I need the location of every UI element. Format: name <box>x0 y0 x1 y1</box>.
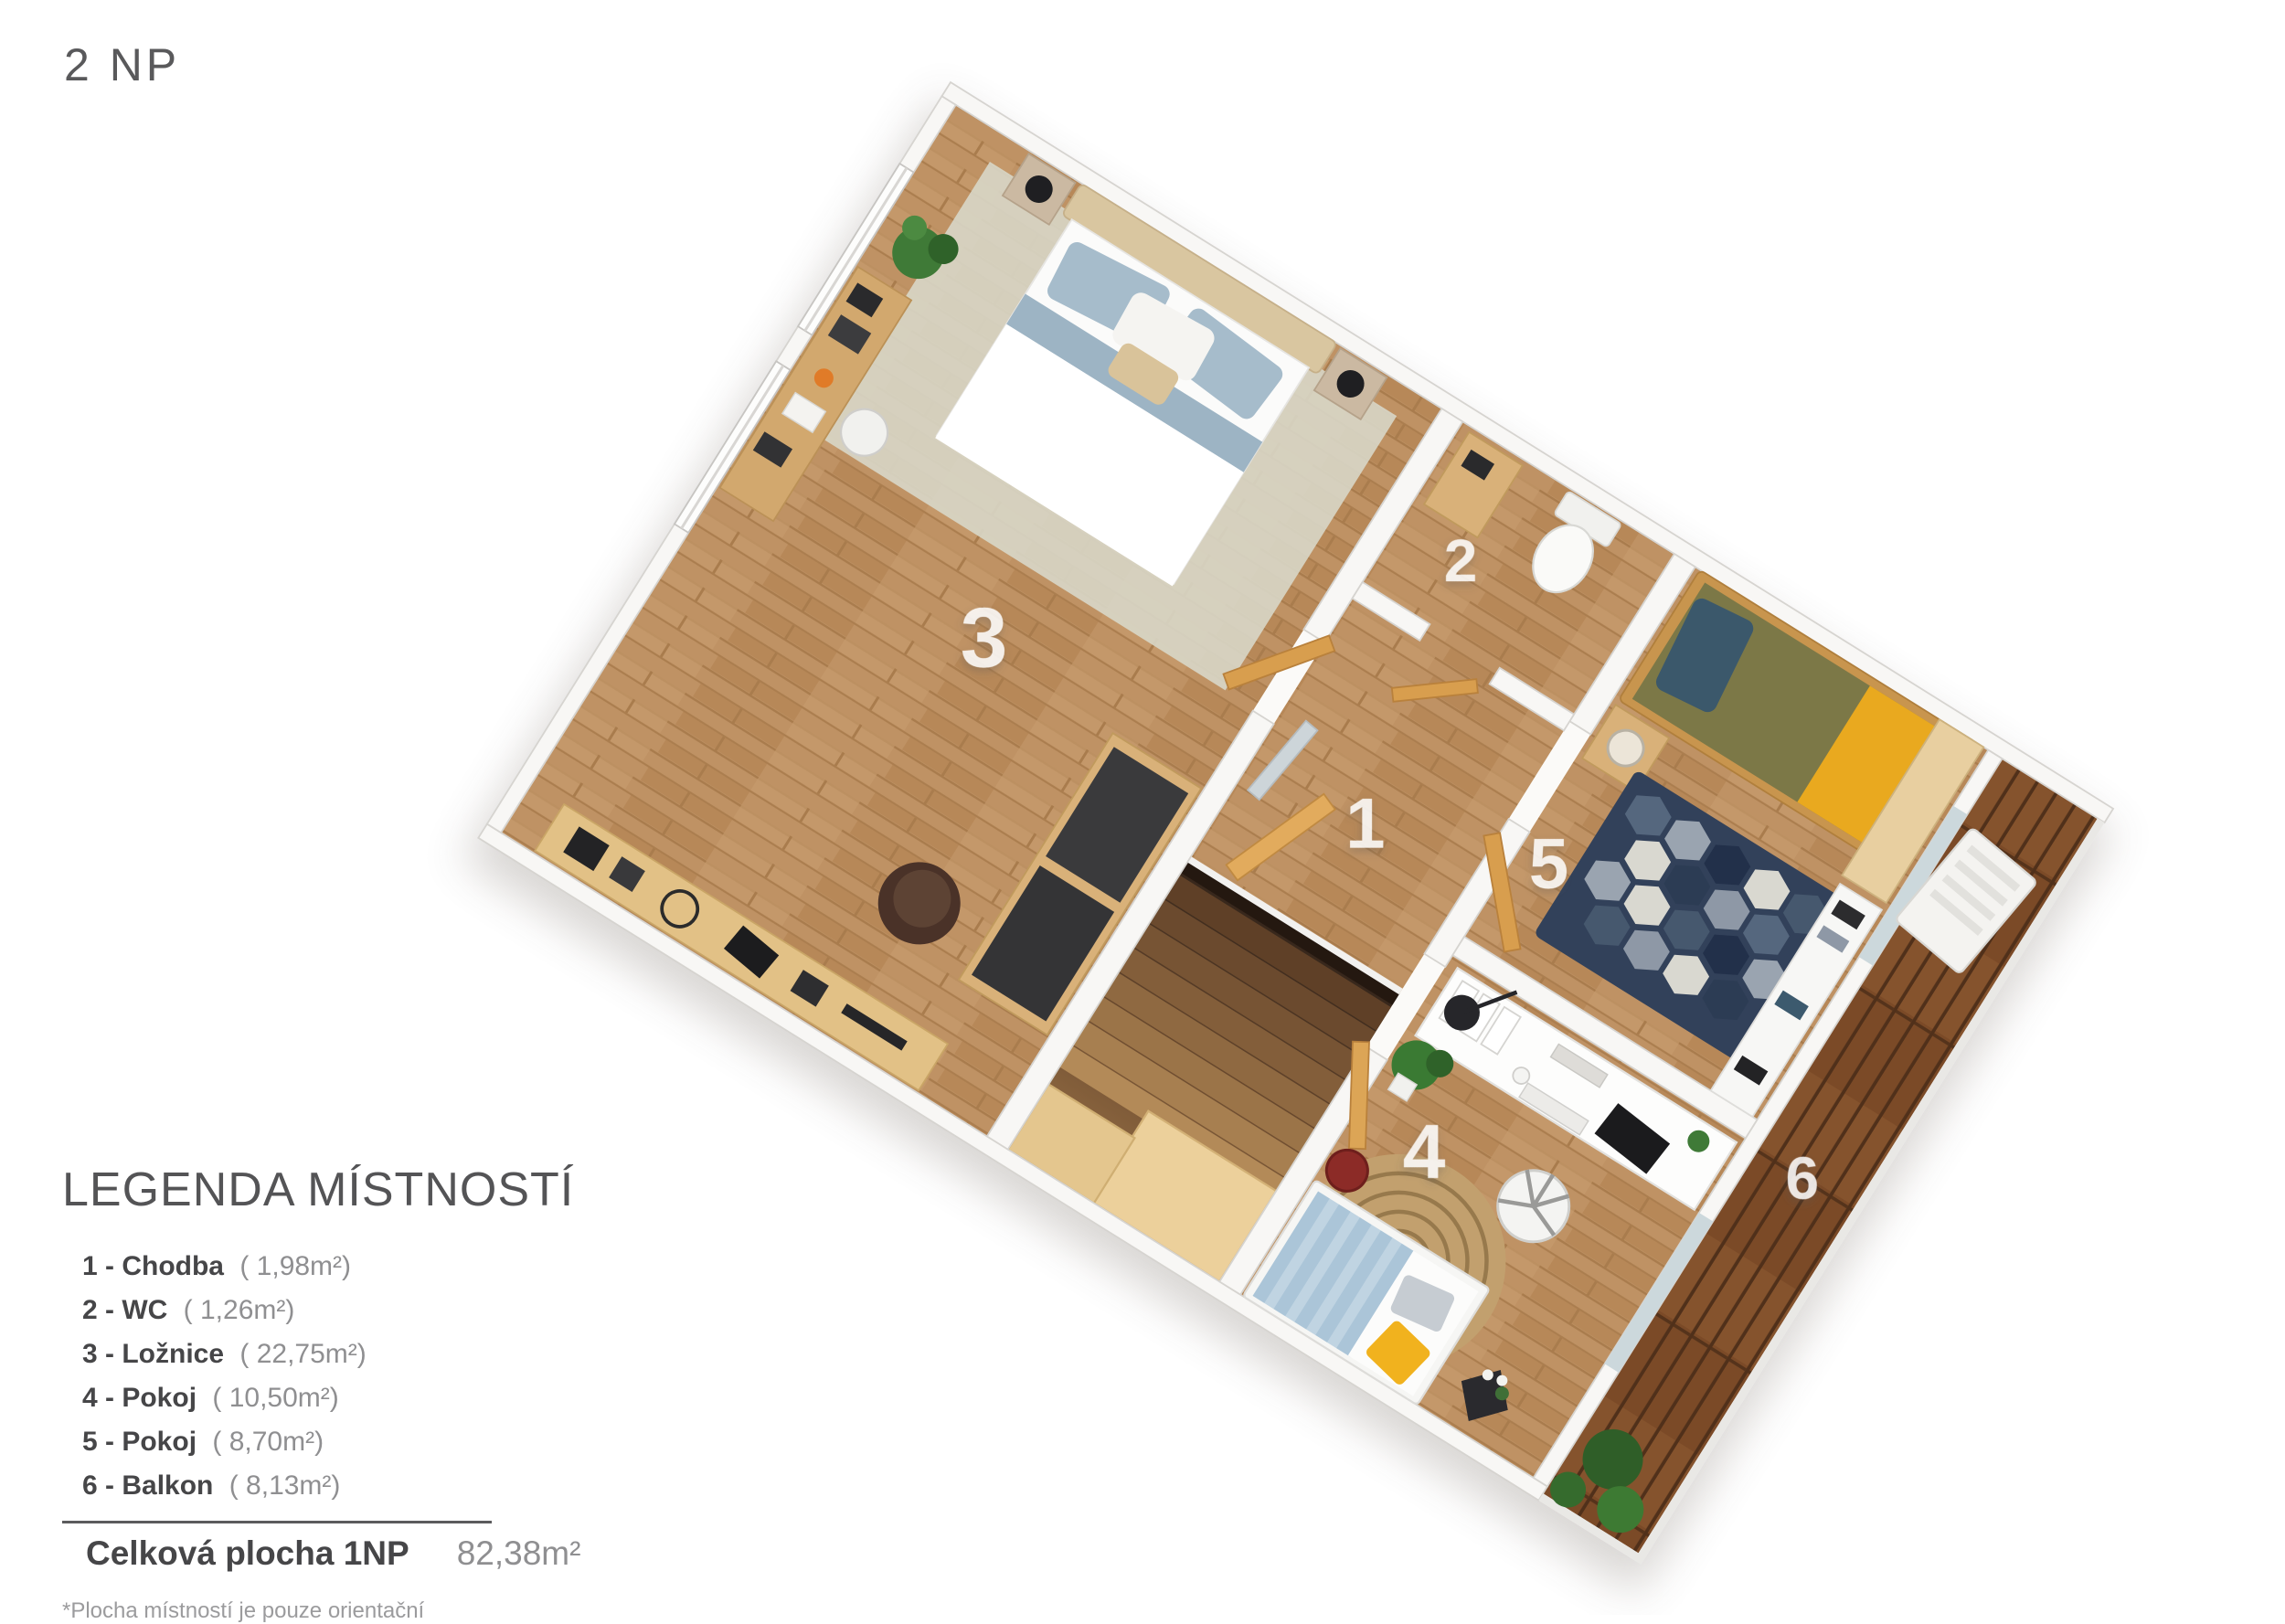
legend-item-area: ( 10,50m²) <box>212 1383 338 1413</box>
legend-item-label: 6 - Balkon <box>82 1470 213 1501</box>
legend-item-area: ( 8,70m²) <box>212 1427 324 1457</box>
legend-item-1: 1 - Chodba ( 1,98m²) <box>82 1245 611 1289</box>
room-label-3: 3 <box>961 590 1008 685</box>
legend-item-label: 2 - WC <box>82 1295 167 1325</box>
legend-divider <box>62 1521 492 1523</box>
legend-item-area: ( 1,26m²) <box>184 1295 295 1325</box>
room-label-1: 1 <box>1345 783 1385 864</box>
legend-footnote: *Plocha místností je pouze orientační <box>62 1598 611 1624</box>
legend-title: LEGENDA MÍSTNOSTÍ <box>62 1162 611 1217</box>
legend-item-label: 1 - Chodba <box>82 1251 224 1281</box>
legend-total-row: Celková plocha 1NP 82,38m² <box>62 1534 611 1573</box>
legend-item-area: ( 1,98m²) <box>239 1251 351 1281</box>
building: 3 1 2 5 4 6 <box>462 80 2125 1595</box>
legend-items: 1 - Chodba ( 1,98m²) 2 - WC ( 1,26m²) 3 … <box>82 1245 611 1508</box>
room-label-5: 5 <box>1529 823 1568 904</box>
legend-item-area: ( 22,75m²) <box>239 1339 366 1369</box>
legend-total-label: Celková plocha 1NP <box>86 1534 409 1573</box>
legend-item-label: 5 - Pokoj <box>82 1427 197 1457</box>
legend-item-2: 2 - WC ( 1,26m²) <box>82 1289 611 1332</box>
door-room4 <box>1349 1042 1369 1150</box>
legend-item-label: 4 - Pokoj <box>82 1383 197 1413</box>
legend-total-value: 82,38m² <box>457 1534 581 1573</box>
legend-item-4: 4 - Pokoj ( 10,50m²) <box>82 1376 611 1420</box>
room-label-6: 6 <box>1785 1144 1819 1212</box>
legend-item-5: 5 - Pokoj ( 8,70m²) <box>82 1420 611 1464</box>
room-label-2: 2 <box>1444 526 1478 594</box>
legend-item-3: 3 - Ložnice ( 22,75m²) <box>82 1332 611 1376</box>
legend-item-6: 6 - Balkon ( 8,13m²) <box>82 1464 611 1508</box>
legend-item-label: 3 - Ložnice <box>82 1339 224 1369</box>
legend-item-area: ( 8,13m²) <box>229 1470 341 1501</box>
legend: LEGENDA MÍSTNOSTÍ 1 - Chodba ( 1,98m²) 2… <box>62 1162 611 1624</box>
room-label-4: 4 <box>1403 1109 1446 1194</box>
